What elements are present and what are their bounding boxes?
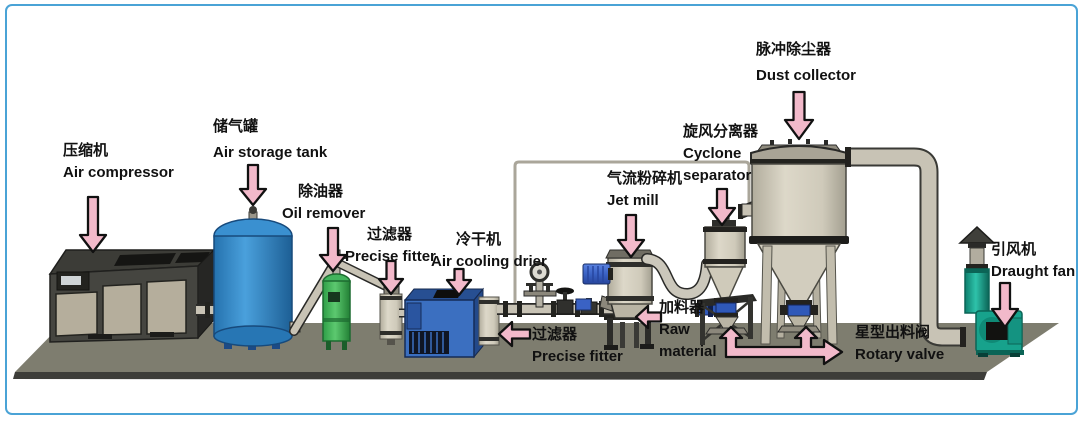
- label-oil-remover: 除油器 Oil remover: [282, 181, 365, 225]
- label-dust-collector-zh: 脉冲除尘器: [756, 39, 856, 61]
- arrow-down-air-compressor-icon: [80, 197, 106, 252]
- mill-motor: [583, 264, 613, 284]
- label-cyclone-separator-zh: 旋风分离器: [683, 121, 758, 143]
- label-raw-material-feeder-en2: material: [659, 341, 717, 363]
- label-rotary-valve-en: Rotary valve: [855, 344, 944, 366]
- label-air-storage-tank-en: Air storage tank: [213, 142, 327, 164]
- label-air-cooling-drier-en: Air cooling drier: [431, 251, 547, 273]
- pipe-jet-mill-to-cyclone: [647, 259, 707, 294]
- label-precise-fitter-2: 过滤器 Precise fitter: [532, 324, 623, 368]
- label-rotary-valve: 星型出料阀 Rotary valve: [855, 322, 944, 366]
- label-raw-material-feeder-zh: 加料器: [659, 297, 717, 319]
- label-air-compressor-en: Air compressor: [63, 162, 174, 184]
- label-jet-mill: 气流粉碎机 Jet mill: [607, 168, 682, 212]
- label-cyclone-separator-en2: separator: [683, 165, 758, 187]
- arrow-down-cyclone-separator-icon: [709, 189, 735, 225]
- label-precise-fitter-1-en: Precise fitter: [345, 246, 436, 268]
- process-flow-diagram: 压缩机 Air compressor 储气罐 Air storage tank …: [0, 0, 1084, 421]
- dust-collector-vessel: [742, 139, 849, 344]
- label-air-storage-tank: 储气罐 Air storage tank: [213, 116, 327, 164]
- label-precise-fitter-2-en: Precise fitter: [532, 346, 623, 368]
- label-precise-fitter-1-zh: 过滤器: [345, 224, 436, 246]
- label-draught-fan-zh: 引风机: [991, 239, 1075, 261]
- label-jet-mill-zh: 气流粉碎机: [607, 168, 682, 190]
- air-storage-tank-vessel: [214, 206, 300, 350]
- label-air-cooling-drier: 冷干机 Air cooling drier: [431, 229, 547, 273]
- arrow-down-air-storage-tank-icon: [240, 165, 266, 205]
- label-precise-fitter-2-zh: 过滤器: [532, 324, 623, 346]
- label-draught-fan: 引风机 Draught fan: [991, 239, 1075, 283]
- label-air-compressor: 压缩机 Air compressor: [63, 140, 174, 184]
- gate-valve: [556, 288, 574, 315]
- label-dust-collector: 脉冲除尘器 Dust collector: [756, 39, 856, 87]
- label-raw-material-feeder: 加料器 Raw material: [659, 297, 717, 363]
- label-precise-fitter-1: 过滤器 Precise fitter: [345, 224, 436, 268]
- label-cyclone-separator-en1: Cyclone: [683, 143, 758, 165]
- arrow-down-dust-collector-icon: [785, 92, 813, 139]
- label-jet-mill-en: Jet mill: [607, 190, 682, 212]
- label-draught-fan-en: Draught fan: [991, 261, 1075, 283]
- label-rotary-valve-zh: 星型出料阀: [855, 322, 944, 344]
- label-air-storage-tank-zh: 储气罐: [213, 116, 327, 138]
- label-oil-remover-en: Oil remover: [282, 203, 365, 225]
- label-air-cooling-drier-zh: 冷干机: [431, 229, 547, 251]
- label-raw-material-feeder-en1: Raw: [659, 319, 717, 341]
- air-compressor-machine: [50, 250, 214, 342]
- label-air-compressor-zh: 压缩机: [63, 140, 174, 162]
- label-dust-collector-en: Dust collector: [756, 65, 856, 87]
- label-oil-remover-zh: 除油器: [282, 181, 365, 203]
- label-cyclone-separator: 旋风分离器 Cyclone separator: [683, 121, 758, 187]
- exhaust-duct: [845, 147, 966, 347]
